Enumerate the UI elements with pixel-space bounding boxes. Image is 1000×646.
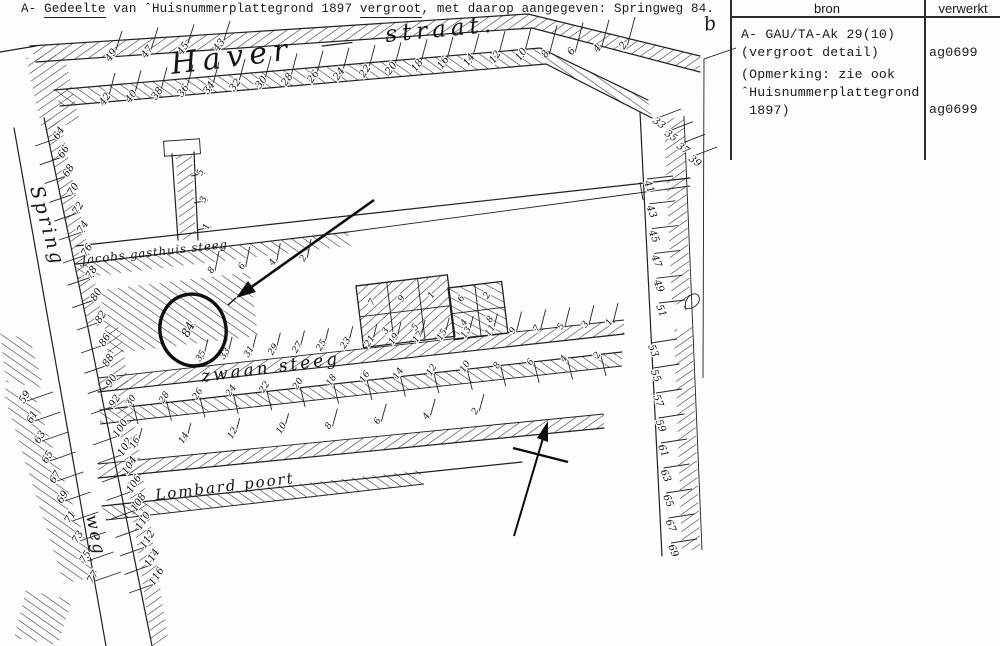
archive-card: { "caption": { "prefix": "A- ", "underli… (0, 0, 1000, 646)
bron-row2-line3: 1897) (741, 103, 790, 118)
hatch-strip (14, 590, 72, 645)
house-number: 53 (645, 343, 660, 359)
parcel-tick (589, 305, 594, 325)
hatch-strip (176, 154, 196, 240)
house-number: 1 (201, 222, 212, 231)
street-edge (98, 428, 604, 478)
north-arrow (513, 421, 568, 536)
bron-row1-line1: A- GAU/TA-Ak 29(10) (741, 27, 895, 42)
house-number: 29 (266, 342, 281, 358)
caption: A- Gedeelte van ˆHuisnummerplattegrond 1… (21, 2, 714, 16)
table-header-rule (730, 16, 1000, 18)
house-number: 63 (658, 468, 673, 484)
house-number: 67 (663, 518, 678, 535)
house-number: 45 (646, 228, 661, 245)
hatch-strip (100, 272, 258, 354)
hatch-strip (26, 54, 80, 130)
parcel-tick (541, 309, 546, 329)
house-number: 55 (648, 368, 663, 384)
parcel-tick (613, 303, 618, 323)
court-block-right (448, 281, 508, 339)
table-cell-verwerkt-row2: ag0699 (929, 101, 978, 119)
hatch-strip (540, 48, 652, 118)
north-arrow-shaft (514, 428, 546, 536)
parcel-tick (381, 404, 386, 422)
table-cell-bron-row1: A- GAU/TA-Ak 29(10)(vergroot detail) (741, 26, 895, 62)
parcel-tick (479, 394, 484, 412)
house-number: 47 (648, 252, 664, 269)
house-number: 5 (195, 168, 206, 177)
street-edge (348, 186, 690, 232)
house-number: 39 (686, 153, 703, 170)
table-border-middle (924, 0, 926, 160)
bron-row2-line2: ˆHuisnummerplattegrond (741, 85, 920, 100)
house-number: 14 (177, 430, 192, 445)
table-cell-bron-row2: (Opmerking: zie ookˆHuisnummerplattegron… (741, 66, 920, 120)
caption-underlined-gedeelte: Gedeelte (44, 2, 106, 18)
table-header-bron: bron (732, 1, 922, 16)
parcel-tick (430, 399, 435, 417)
street-edge (98, 414, 604, 464)
hatch-strip (98, 414, 604, 478)
house-number: 35 (194, 348, 209, 363)
house-number: 49 (650, 277, 666, 294)
house-number: 57 (650, 393, 665, 410)
parcel-tick (565, 307, 570, 327)
table-border-left (730, 0, 732, 160)
street-edge (76, 178, 690, 246)
house-number: 59 (653, 418, 668, 435)
caption-middle: van ˆHuisnummerplattegrond 1897 (106, 2, 360, 16)
table-header-verwerkt: verwerkt (926, 1, 1000, 16)
house-number: 51 (653, 303, 668, 319)
hatch-strip (0, 332, 44, 388)
alley-cap (164, 139, 201, 156)
caption-underlined-vergroot: vergroot (360, 2, 422, 18)
table-cell-verwerkt-row1: ag0699 (929, 44, 978, 62)
house-number: 31 (242, 344, 257, 359)
house-number: 69 (665, 543, 680, 560)
house-number: 12 (226, 426, 241, 441)
north-arrow-cross (513, 448, 568, 462)
label-dash (322, 43, 352, 47)
caption-suffix: , met daarop aangegeven: Springweg 84. (422, 2, 715, 16)
house-number: 23 (338, 336, 353, 352)
house-number: 65 (660, 493, 675, 509)
bron-row1-line2: (vergroot detail) (741, 45, 879, 60)
bron-row2-line1: (Opmerking: zie ook (741, 67, 895, 82)
parcel-tick (517, 311, 522, 331)
parcel-tick (332, 409, 337, 427)
caption-prefix: A- (21, 2, 44, 16)
house-number: 10 (275, 421, 290, 436)
street-edge (0, 46, 36, 52)
house-number: 3 (198, 195, 209, 204)
